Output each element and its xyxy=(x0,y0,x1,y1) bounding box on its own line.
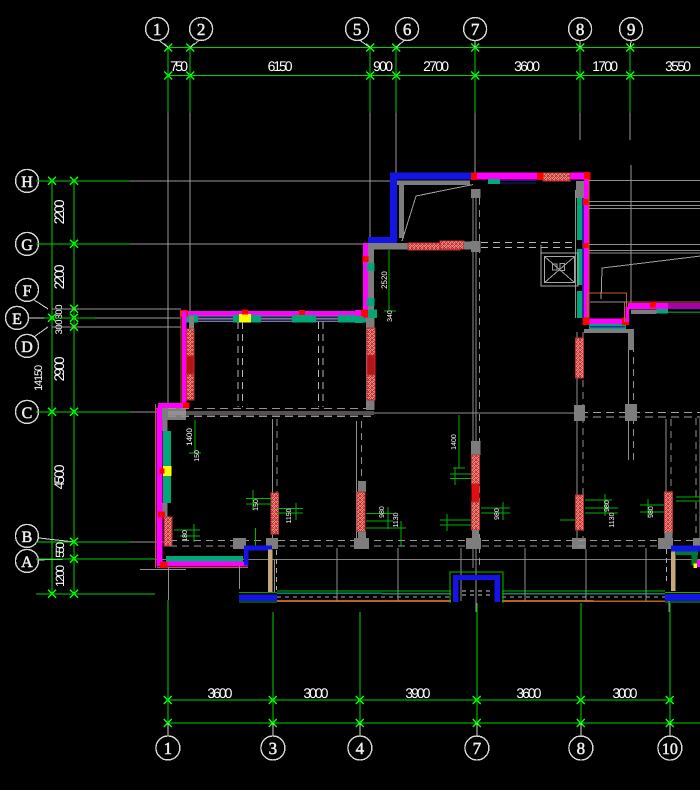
svg-text:A: A xyxy=(21,554,33,571)
svg-text:14150: 14150 xyxy=(33,365,45,391)
svg-text:3600: 3600 xyxy=(207,685,232,701)
svg-text:5: 5 xyxy=(353,20,362,39)
svg-text:3550: 3550 xyxy=(665,58,691,74)
svg-text:D: D xyxy=(21,339,33,356)
svg-text:6150: 6150 xyxy=(268,58,293,74)
svg-text:150: 150 xyxy=(253,499,260,511)
svg-text:8: 8 xyxy=(577,739,586,758)
svg-text:2200: 2200 xyxy=(51,199,67,224)
svg-text:2700: 2700 xyxy=(423,58,449,74)
svg-text:2900: 2900 xyxy=(51,356,67,381)
svg-text:150: 150 xyxy=(194,450,201,462)
svg-text:E: E xyxy=(12,311,22,328)
svg-text:9: 9 xyxy=(627,20,636,39)
svg-text:1700: 1700 xyxy=(592,58,618,74)
svg-text:B: B xyxy=(22,529,33,546)
svg-text:1130: 1130 xyxy=(609,512,616,527)
svg-text:1200: 1200 xyxy=(53,565,67,587)
svg-text:8: 8 xyxy=(576,20,585,39)
svg-text:750: 750 xyxy=(170,58,188,74)
svg-text:2: 2 xyxy=(197,20,206,39)
svg-text:550: 550 xyxy=(53,542,67,558)
svg-text:980: 980 xyxy=(494,508,501,520)
svg-text:10: 10 xyxy=(662,741,678,758)
svg-text:1400: 1400 xyxy=(185,428,194,446)
svg-text:3000: 3000 xyxy=(303,685,328,701)
svg-text:3900: 3900 xyxy=(405,685,430,701)
svg-text:980: 980 xyxy=(604,500,611,512)
svg-text:1400: 1400 xyxy=(451,434,458,450)
svg-text:7: 7 xyxy=(471,20,480,39)
svg-text:980: 980 xyxy=(648,506,655,518)
svg-text:H: H xyxy=(21,174,33,191)
svg-text:1130: 1130 xyxy=(393,512,400,527)
svg-text:2200: 2200 xyxy=(51,264,67,289)
svg-text:980: 980 xyxy=(379,506,386,518)
svg-text:3600: 3600 xyxy=(514,58,540,74)
svg-text:6: 6 xyxy=(403,20,412,39)
svg-text:900: 900 xyxy=(373,58,393,74)
svg-text:340: 340 xyxy=(387,310,394,322)
svg-text:4500: 4500 xyxy=(51,464,67,489)
svg-text:F: F xyxy=(23,283,32,300)
svg-text:300: 300 xyxy=(54,304,65,319)
svg-text:1: 1 xyxy=(164,739,173,758)
svg-text:3000: 3000 xyxy=(612,685,637,701)
svg-text:3: 3 xyxy=(269,739,278,758)
svg-text:1: 1 xyxy=(153,20,162,39)
svg-text:4: 4 xyxy=(356,739,365,758)
svg-text:1150: 1150 xyxy=(286,508,293,523)
svg-text:2520: 2520 xyxy=(380,271,389,289)
svg-text:C: C xyxy=(22,405,33,422)
svg-text:3600: 3600 xyxy=(516,685,541,701)
svg-text:7: 7 xyxy=(473,739,482,758)
svg-text:G: G xyxy=(21,237,33,254)
